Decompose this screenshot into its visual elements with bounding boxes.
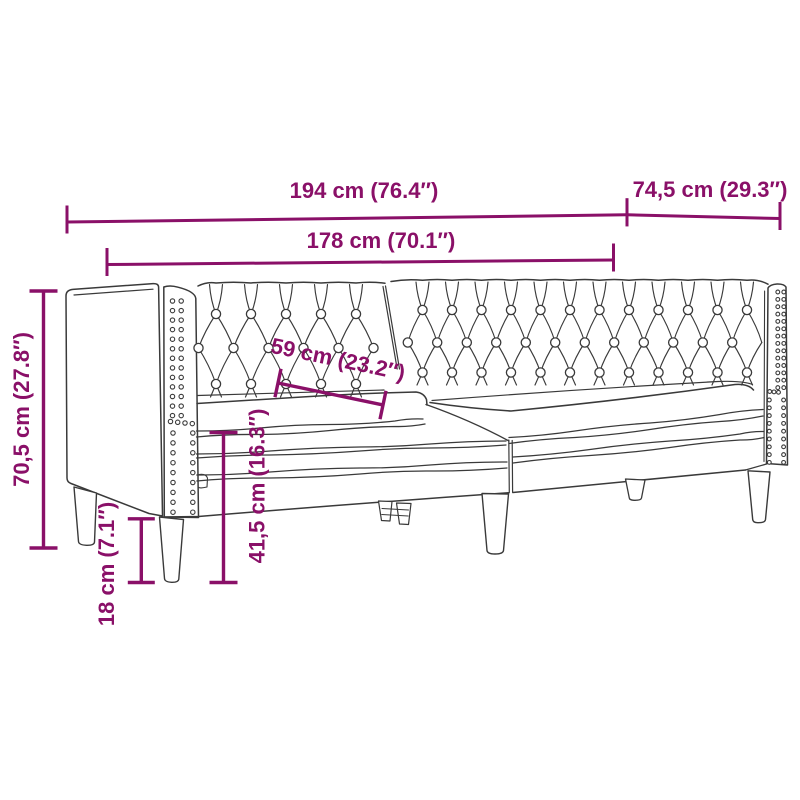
svg-text:18 cm (7.1″): 18 cm (7.1″)	[94, 502, 119, 626]
svg-text:194 cm (76.4″): 194 cm (76.4″)	[290, 178, 439, 203]
svg-text:70,5 cm (27.8″): 70,5 cm (27.8″)	[9, 332, 34, 487]
svg-text:59 cm (23.2″): 59 cm (23.2″)	[269, 333, 408, 385]
svg-text:74,5 cm (29.3″): 74,5 cm (29.3″)	[633, 177, 788, 202]
svg-text:178 cm (70.1″): 178 cm (70.1″)	[307, 228, 456, 253]
svg-text:41,5 cm (16.3″): 41,5 cm (16.3″)	[245, 409, 270, 564]
